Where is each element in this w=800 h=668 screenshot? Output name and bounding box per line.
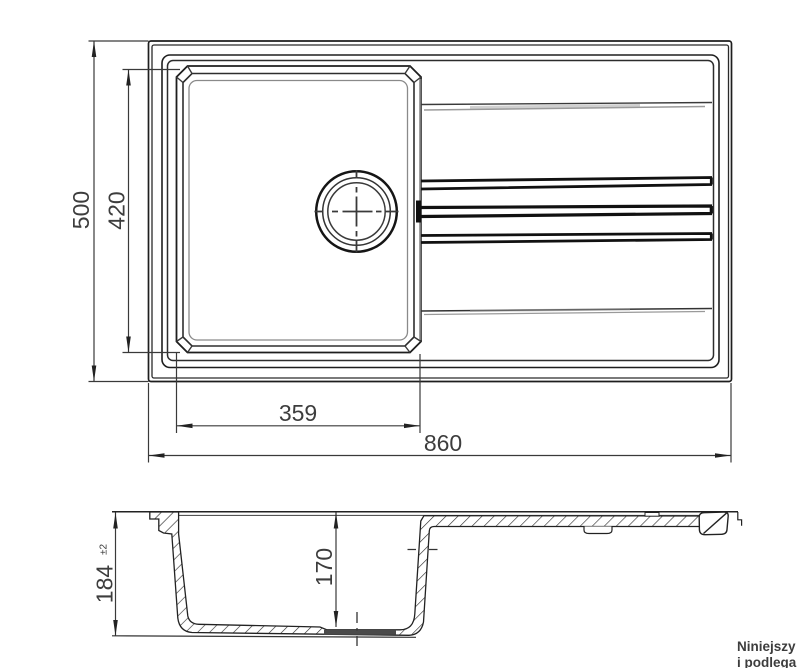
- svg-text:184: 184: [92, 565, 118, 604]
- svg-text:420: 420: [104, 191, 130, 229]
- svg-text:170: 170: [311, 548, 337, 586]
- svg-text:860: 860: [424, 430, 462, 456]
- svg-text:i podlega ochronie: i podlega ochronie: [737, 655, 800, 668]
- svg-text:500: 500: [68, 191, 94, 229]
- svg-text:Niniejszy rysunek: Niniejszy rysunek: [737, 639, 800, 654]
- svg-text:359: 359: [279, 400, 317, 426]
- svg-text:±2: ±2: [99, 544, 110, 555]
